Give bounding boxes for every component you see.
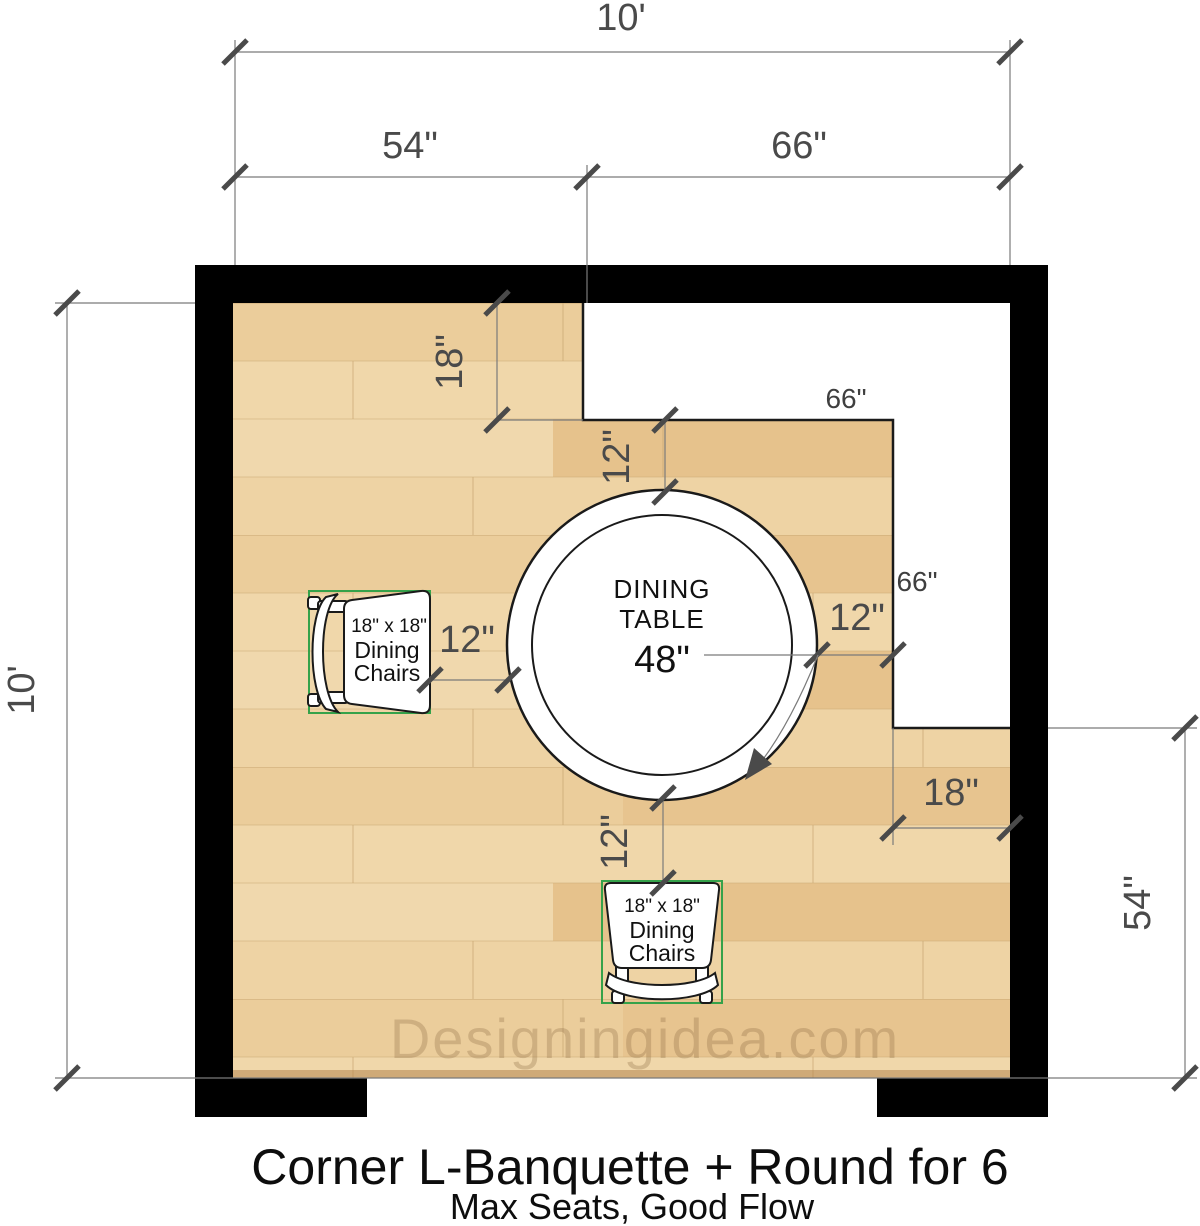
dim-bench-width-label: 18" — [923, 772, 979, 814]
wall-right — [1010, 303, 1048, 1078]
dim-right-span-label: 66" — [771, 125, 827, 167]
dining-table: DINING TABLE 48" — [507, 490, 817, 800]
floor-bottom-edge — [233, 1070, 1010, 1078]
dim-room-height-label: 10' — [1, 665, 43, 715]
table-label-line1: DINING — [614, 574, 711, 604]
dim-bench-depth-label: 18" — [429, 334, 471, 390]
dim-room-width: 10' — [223, 0, 1022, 265]
dim-gap-bottom-label: 12" — [594, 814, 636, 870]
dim-room-width-label: 10' — [596, 0, 646, 39]
wall-bottom-left — [195, 1078, 367, 1117]
label-bench-right-66: 66" — [896, 566, 937, 597]
dim-right-wall-span-label: 54" — [1117, 875, 1159, 931]
wall-left — [195, 303, 233, 1078]
chair-left-label-line2: Chairs — [354, 660, 420, 686]
plan-subtitle: Max Seats, Good Flow — [450, 1186, 815, 1226]
watermark: Designingidea.com — [390, 1007, 900, 1070]
dim-gap-left-label: 12" — [439, 619, 495, 661]
chair-bottom: 18" x 18" Dining Chairs — [602, 881, 722, 1003]
wall-top — [195, 265, 1048, 303]
floor-plan-page: Designingidea.com DINING TABLE 48" 18" x… — [0, 0, 1200, 1226]
chair-bottom-label-line2: Chairs — [629, 940, 695, 966]
chair-bottom-size-label: 18" x 18" — [624, 896, 700, 917]
table-label-line2: TABLE — [619, 604, 704, 634]
wall-bottom-right — [877, 1078, 1048, 1117]
chair-left-size-label: 18" x 18" — [351, 616, 427, 637]
floor-plan-svg: Designingidea.com DINING TABLE 48" 18" x… — [0, 0, 1200, 1226]
dim-gap-right-label: 12" — [829, 597, 885, 639]
label-bench-top-66: 66" — [825, 383, 866, 414]
dim-gap-top-label: 12" — [596, 429, 638, 485]
dim-left-span-label: 54" — [382, 125, 438, 167]
dim-right-54: 54" — [1048, 716, 1197, 1090]
table-diameter-label: 48" — [634, 639, 690, 681]
